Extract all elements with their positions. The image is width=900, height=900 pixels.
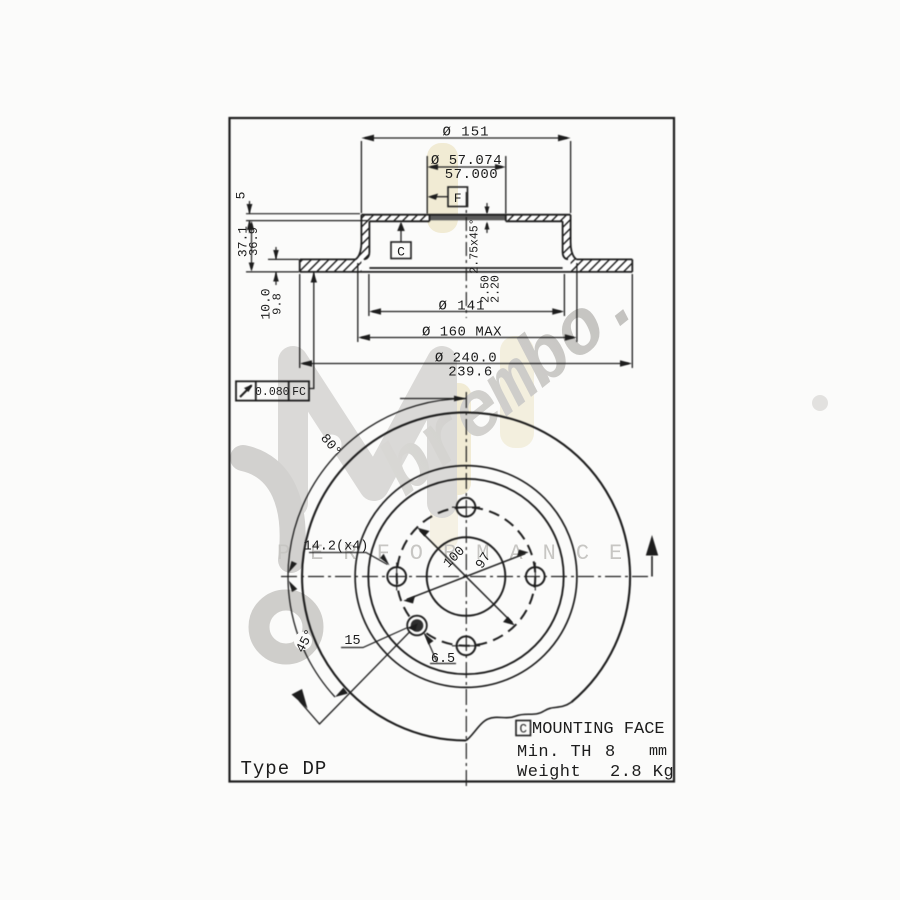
svg-text:Ø 160 MAX: Ø 160 MAX bbox=[422, 325, 502, 341]
svg-text:C: C bbox=[519, 723, 527, 737]
svg-text:Ø 151: Ø 151 bbox=[442, 125, 489, 141]
svg-text:MOUNTING FACE: MOUNTING FACE bbox=[532, 720, 665, 739]
svg-text:9.8: 9.8 bbox=[271, 293, 285, 315]
svg-text:FC: FC bbox=[292, 386, 306, 399]
svg-text:6.5: 6.5 bbox=[431, 652, 455, 667]
svg-text:5: 5 bbox=[234, 192, 249, 200]
svg-text:2.20: 2.20 bbox=[490, 275, 503, 303]
svg-text:15: 15 bbox=[344, 634, 360, 649]
svg-text:C: C bbox=[397, 245, 405, 260]
svg-text:239.6: 239.6 bbox=[448, 365, 493, 381]
svg-text:57.000: 57.000 bbox=[445, 167, 498, 183]
svg-text:mm: mm bbox=[649, 743, 667, 760]
svg-text:Ø 141: Ø 141 bbox=[438, 299, 485, 315]
svg-text:Weight: Weight bbox=[517, 763, 581, 782]
svg-text:8: 8 bbox=[605, 743, 615, 762]
svg-text:14.2(x4): 14.2(x4) bbox=[304, 540, 369, 555]
svg-text:2.75x45°: 2.75x45° bbox=[469, 218, 482, 273]
svg-text:Type DP: Type DP bbox=[241, 758, 328, 780]
svg-text:2.8 Kg: 2.8 Kg bbox=[610, 763, 674, 782]
svg-text:F: F bbox=[454, 191, 462, 206]
svg-text:0.080: 0.080 bbox=[255, 386, 290, 399]
svg-text:Min. TH: Min. TH bbox=[517, 743, 592, 762]
svg-text:36.9: 36.9 bbox=[247, 227, 261, 256]
